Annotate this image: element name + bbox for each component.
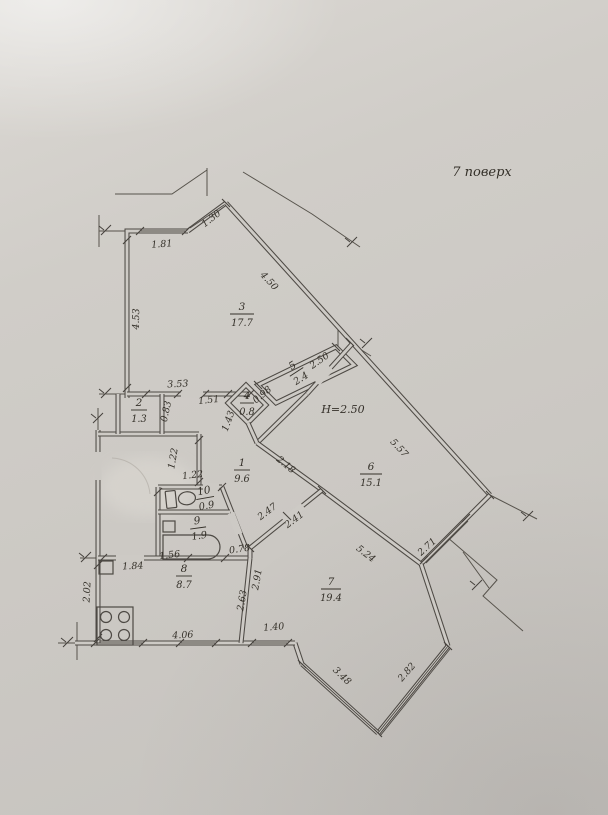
room-label-1: 1 9.6 <box>234 457 250 485</box>
dim-2-41: 2.41 <box>282 509 306 531</box>
room-1-number: 1 <box>239 457 246 469</box>
room-label-7: 7 19.4 <box>320 576 342 604</box>
room-10-number: 10 <box>196 484 212 498</box>
room-9-number: 9 <box>193 515 202 528</box>
dim-1-30: 1.30 <box>200 208 223 230</box>
room-3-area: 17.7 <box>231 318 254 329</box>
room-9-area: 1.9 <box>191 530 208 543</box>
room-4-area: 0.8 <box>239 407 255 418</box>
height-note: H=2.50 <box>320 403 364 416</box>
room-label-9: 9 1.9 <box>188 514 208 543</box>
dim-2-82: 2.82 <box>395 661 418 685</box>
washbasin-icon <box>163 521 175 532</box>
dim-2-02: 2.02 <box>81 581 93 604</box>
stove-icon <box>97 607 133 645</box>
dim-2-47: 2.47 <box>255 501 280 524</box>
dim-1-81: 1.81 <box>151 238 173 250</box>
room-7-area: 19.4 <box>320 593 342 604</box>
dim-2-63: 2.63 <box>235 589 250 613</box>
room-8-area: 8.7 <box>176 580 192 591</box>
room-label-2: 2 1.3 <box>131 397 147 425</box>
room-2-area: 1.3 <box>131 414 147 425</box>
dim-1-51: 1.51 <box>198 394 220 407</box>
room-6-number: 6 <box>368 461 375 473</box>
room-7-number: 7 <box>328 576 335 588</box>
dim-4-50: 4.50 <box>257 269 280 293</box>
kitchen-sink-icon <box>99 561 113 574</box>
floor-title: 7 поверх <box>452 165 512 180</box>
room-2-number: 2 <box>135 397 143 409</box>
dim-5-24: 5.24 <box>354 543 377 565</box>
labels: 7 поверх H=2.50 3 17.7 2 1.3 4 0.8 5 2.4… <box>81 165 512 688</box>
room-label-6: 6 15.1 <box>360 461 382 489</box>
dim-1-40: 1.40 <box>263 621 285 634</box>
room-8-number: 8 <box>181 563 188 575</box>
room-3-number: 3 <box>239 301 246 313</box>
dim-3-48: 3.48 <box>330 665 353 688</box>
room-1-area: 9.6 <box>234 474 250 485</box>
room-label-3: 3 17.7 <box>230 301 254 329</box>
room-6-area: 15.1 <box>360 478 382 489</box>
dim-3-53: 3.53 <box>167 378 189 390</box>
floor-plan-scan: 7 поверх H=2.50 3 17.7 2 1.3 4 0.8 5 2.4… <box>0 0 608 815</box>
dim-1-43: 1.43 <box>220 409 238 433</box>
extension-lines <box>58 168 537 660</box>
room-4-number: 4 <box>243 390 251 402</box>
dim-4-06: 4.06 <box>171 629 194 641</box>
dim-5-57: 5.57 <box>388 437 411 461</box>
dim-1-84: 1.84 <box>122 560 144 572</box>
dim-4-53: 4.53 <box>131 308 142 330</box>
dim-2-91: 2.91 <box>250 568 265 592</box>
room-label-8: 8 8.7 <box>176 563 193 591</box>
